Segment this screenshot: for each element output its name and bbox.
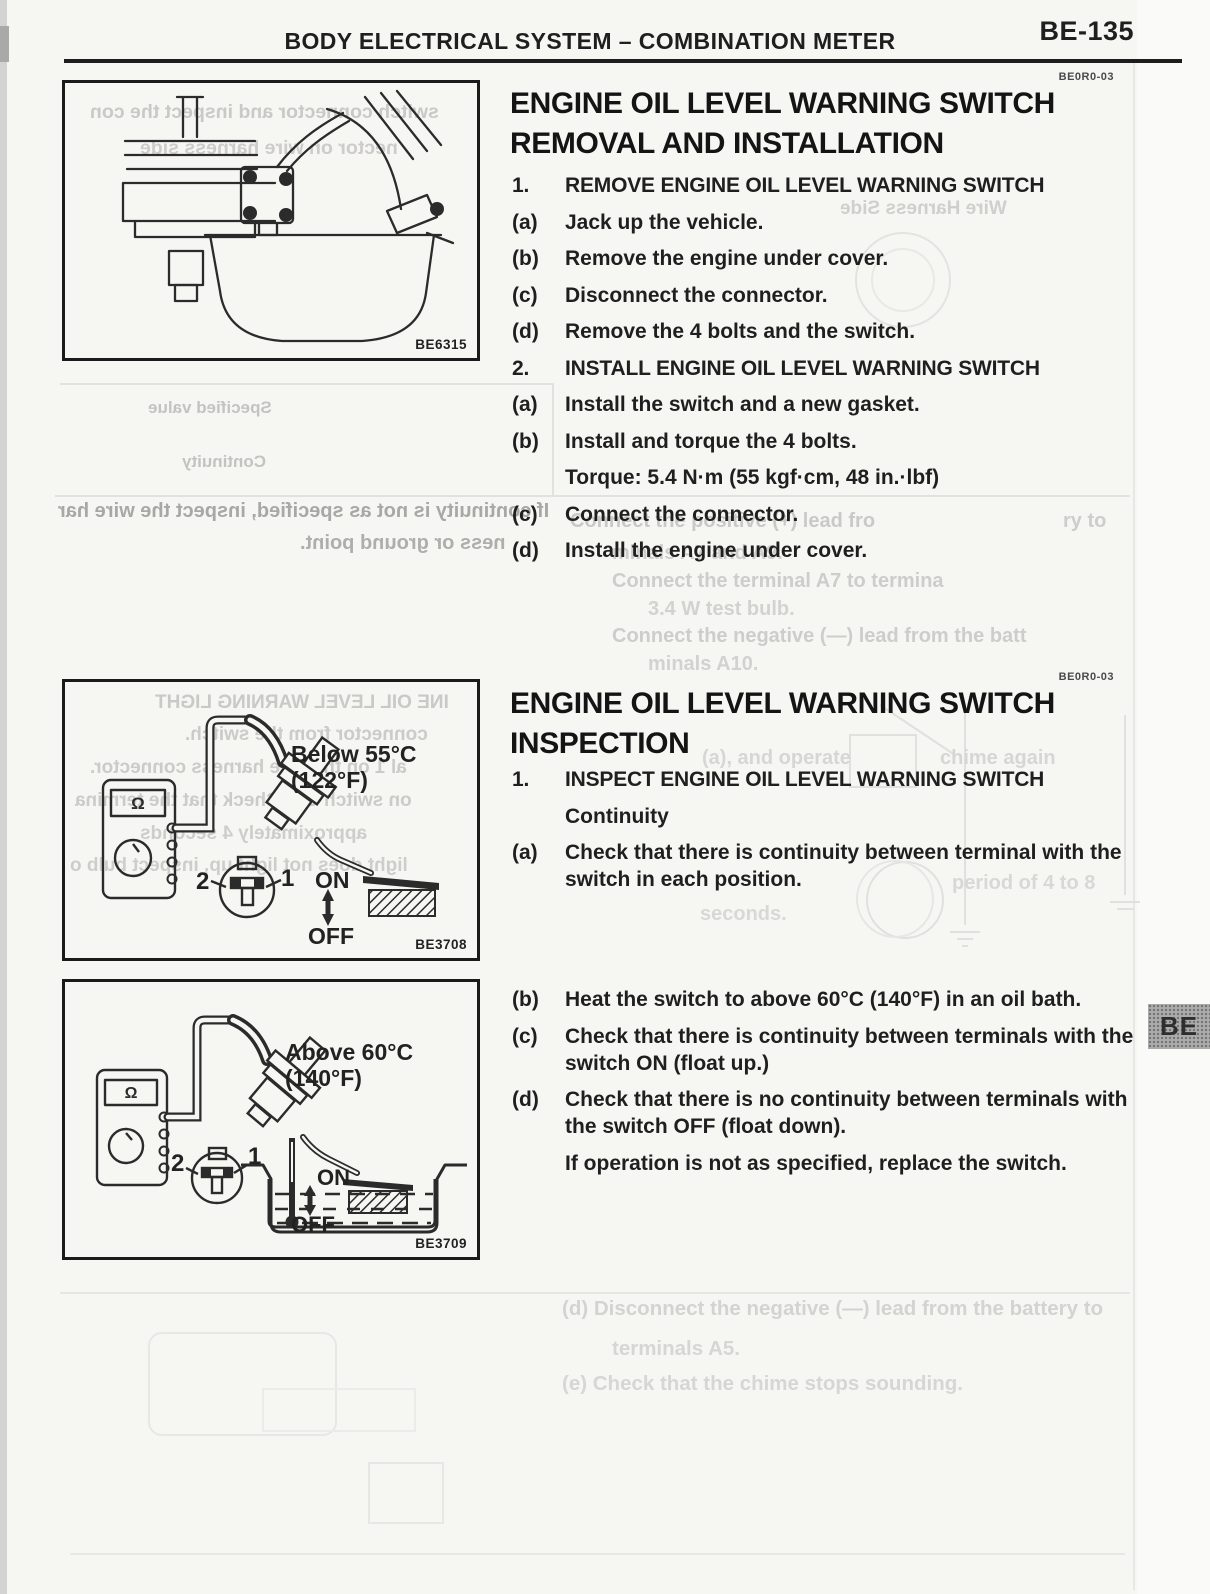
ghost-line — [70, 1553, 1125, 1555]
step-text: Continuity — [565, 803, 1132, 830]
step-label: (c) — [512, 501, 565, 528]
step-label — [512, 803, 565, 830]
step-text: INSPECT ENGINE OIL LEVEL WARNING SWITCH — [565, 766, 1132, 793]
section-index-tab: BE — [1148, 1004, 1210, 1049]
step-label: (d) — [512, 318, 565, 345]
section-title-line1: ENGINE OIL LEVEL WARNING SWITCH — [510, 684, 1120, 724]
ghost-text: ness or ground point. — [300, 532, 506, 555]
manual-page: Wire Harness Side Specified value Contin… — [0, 0, 1210, 1594]
ghost-text: (e) Check that the chime stops sounding. — [562, 1372, 963, 1396]
ghost-text: terminals A5. — [612, 1337, 740, 1361]
step-label: (d) — [512, 1086, 565, 1140]
step-label — [512, 1150, 565, 1177]
ghost-text: minals A10. — [648, 653, 758, 676]
step-label: (c) — [512, 1023, 565, 1077]
page-number: BE-135 — [1039, 16, 1134, 47]
step-row: (b)Install and torque the 4 bolts. — [512, 428, 1132, 455]
header-section-title: COMBINATION METER — [639, 28, 896, 54]
step-text: Heat the switch to above 60°C (140°F) in… — [565, 986, 1152, 1013]
step-row: Continuity — [512, 803, 1132, 830]
ghost-text: (d) Disconnect the negative (—) lead fro… — [562, 1297, 1103, 1321]
step-row: (c)Connect the connector. — [512, 501, 1132, 528]
step-label: (b) — [512, 428, 565, 455]
terminal-2-label: 2 — [171, 1150, 184, 1177]
step-row: (d)Check that there is no continuity bet… — [512, 1086, 1152, 1140]
section-title-line1: ENGINE OIL LEVEL WARNING SWITCH — [510, 84, 1120, 124]
step-label: (a) — [512, 391, 565, 418]
section-code: BE0R0-03 — [1059, 71, 1114, 83]
step-label: (a) — [512, 209, 565, 236]
ghost-text: Specified value — [148, 398, 272, 418]
step-text: Check that there is no continuity betwee… — [565, 1086, 1152, 1140]
removal-steps: 1.REMOVE ENGINE OIL LEVEL WARNING SWITCH… — [512, 172, 1132, 574]
step-label: (b) — [512, 986, 565, 1013]
section-title-line2: INSPECTION — [510, 724, 1120, 764]
step-label — [512, 464, 565, 491]
torque-spec-row: Torque: 5.4 N·m (55 kgf·cm, 48 in.·lbf) — [512, 464, 1132, 491]
step-text: Check that there is continuity between t… — [565, 1023, 1152, 1077]
step-text: Jack up the vehicle. — [565, 209, 1132, 236]
step-text: Remove the 4 bolts and the switch. — [565, 318, 1132, 345]
off-label: OFF — [308, 923, 354, 949]
step-row: (c)Disconnect the connector. — [512, 282, 1132, 309]
step-label: 1. — [512, 766, 565, 793]
step-row: 1.REMOVE ENGINE OIL LEVEL WARNING SWITCH — [512, 172, 1132, 199]
page-header-title: BODY ELECTRICAL SYSTEM – COMBINATION MET… — [90, 28, 1090, 55]
ohm-symbol: Ω — [131, 794, 145, 813]
ghost-figure-outline — [262, 1388, 416, 1432]
terminal-1-label: 1 — [281, 865, 294, 892]
step-text: Check that there is continuity between t… — [565, 839, 1132, 893]
step-text: Connect the connector. — [565, 501, 1132, 528]
figure-caption: BE3709 — [415, 1236, 467, 1251]
on-label: ON — [315, 867, 350, 893]
step-label: 1. — [512, 172, 565, 199]
figure-caption: BE3708 — [415, 937, 467, 952]
step-row: (a)Jack up the vehicle. — [512, 209, 1132, 236]
step-text: INSTALL ENGINE OIL LEVEL WARNING SWITCH — [565, 355, 1132, 382]
inspection-steps: 1.INSPECT ENGINE OIL LEVEL WARNING SWITC… — [512, 766, 1132, 903]
inspection-section-heading: BE0R0-03 ENGINE OIL LEVEL WARNING SWITCH… — [510, 684, 1120, 764]
figure-be3709: Ω — [62, 979, 480, 1260]
ghost-text: If continuity is not as specified, inspe… — [58, 500, 549, 523]
step-label: (b) — [512, 245, 565, 272]
step-row: 1.INSPECT ENGINE OIL LEVEL WARNING SWITC… — [512, 766, 1132, 793]
oil-bath-test-drawing: Ω — [65, 982, 477, 1257]
step-text: REMOVE ENGINE OIL LEVEL WARNING SWITCH — [565, 172, 1132, 199]
ghost-text: Continuity — [182, 452, 266, 472]
header-separator: – — [619, 28, 632, 54]
step-row: 2.INSTALL ENGINE OIL LEVEL WARNING SWITC… — [512, 355, 1132, 382]
section-title-line2: REMOVAL AND INSTALLATION — [510, 124, 1120, 164]
ghost-line — [60, 383, 552, 385]
step-text: Install and torque the 4 bolts. — [565, 428, 1132, 455]
scan-left-edge — [0, 0, 7, 1594]
step-row: If operation is not as specified, replac… — [512, 1150, 1152, 1177]
step-row: (a)Check that there is continuity betwee… — [512, 839, 1132, 893]
header-rule — [64, 59, 1182, 63]
section-code: BE0R0-03 — [1059, 671, 1114, 683]
ohm-symbol: Ω — [125, 1085, 138, 1102]
figure-be6315: switch connector and inspect the con nec… — [62, 80, 480, 361]
ghost-text: seconds. — [700, 903, 787, 926]
temperature-label: Below 55°C — [291, 741, 417, 767]
terminal-2-label: 2 — [196, 868, 209, 895]
temperature-label-f: (140°F) — [285, 1065, 362, 1091]
step-row: (b)Remove the engine under cover. — [512, 245, 1132, 272]
terminal-1-label: 1 — [248, 1143, 261, 1170]
off-label: OFF — [291, 1212, 335, 1237]
step-text: Remove the engine under cover. — [565, 245, 1132, 272]
continuity-test-drawing: Ω — [65, 682, 477, 958]
ghost-text: 3.4 W test bulb. — [648, 598, 795, 621]
figure-caption: BE6315 — [415, 337, 467, 352]
removal-section-heading: BE0R0-03 ENGINE OIL LEVEL WARNING SWITCH… — [510, 84, 1120, 164]
step-text: Install the engine under cover. — [565, 537, 1132, 564]
step-row: (d)Install the engine under cover. — [512, 537, 1132, 564]
torque-spec: Torque: 5.4 N·m (55 kgf·cm, 48 in.·lbf) — [565, 464, 1132, 491]
step-row: (b)Heat the switch to above 60°C (140°F)… — [512, 986, 1152, 1013]
on-label: ON — [317, 1165, 350, 1190]
engine-oil-pan-drawing — [65, 83, 477, 358]
temperature-label-f: (122°F) — [291, 767, 368, 793]
inspection-steps-2: (b)Heat the switch to above 60°C (140°F)… — [512, 986, 1152, 1186]
temperature-label: Above 60°C — [285, 1039, 413, 1065]
figure-be3708: INE OIL LEVEL WARNING LIGHT connector fr… — [62, 679, 480, 961]
ghost-line — [60, 1292, 1130, 1294]
step-row: (c)Check that there is continuity betwee… — [512, 1023, 1152, 1077]
ghost-figure-outline — [368, 1462, 444, 1524]
step-row: (a)Install the switch and a new gasket. — [512, 391, 1132, 418]
step-row: (d)Remove the 4 bolts and the switch. — [512, 318, 1132, 345]
header-system-title: BODY ELECTRICAL SYSTEM — [284, 28, 611, 54]
step-label: (d) — [512, 537, 565, 564]
ghost-text: Connect the negative (—) lead from the b… — [612, 625, 1026, 648]
step-label: (a) — [512, 839, 565, 893]
step-text: Disconnect the connector. — [565, 282, 1132, 309]
step-text: If operation is not as specified, replac… — [565, 1150, 1152, 1177]
scan-edge-notch — [0, 26, 9, 62]
step-text: Install the switch and a new gasket. — [565, 391, 1132, 418]
step-label: (c) — [512, 282, 565, 309]
step-label: 2. — [512, 355, 565, 382]
